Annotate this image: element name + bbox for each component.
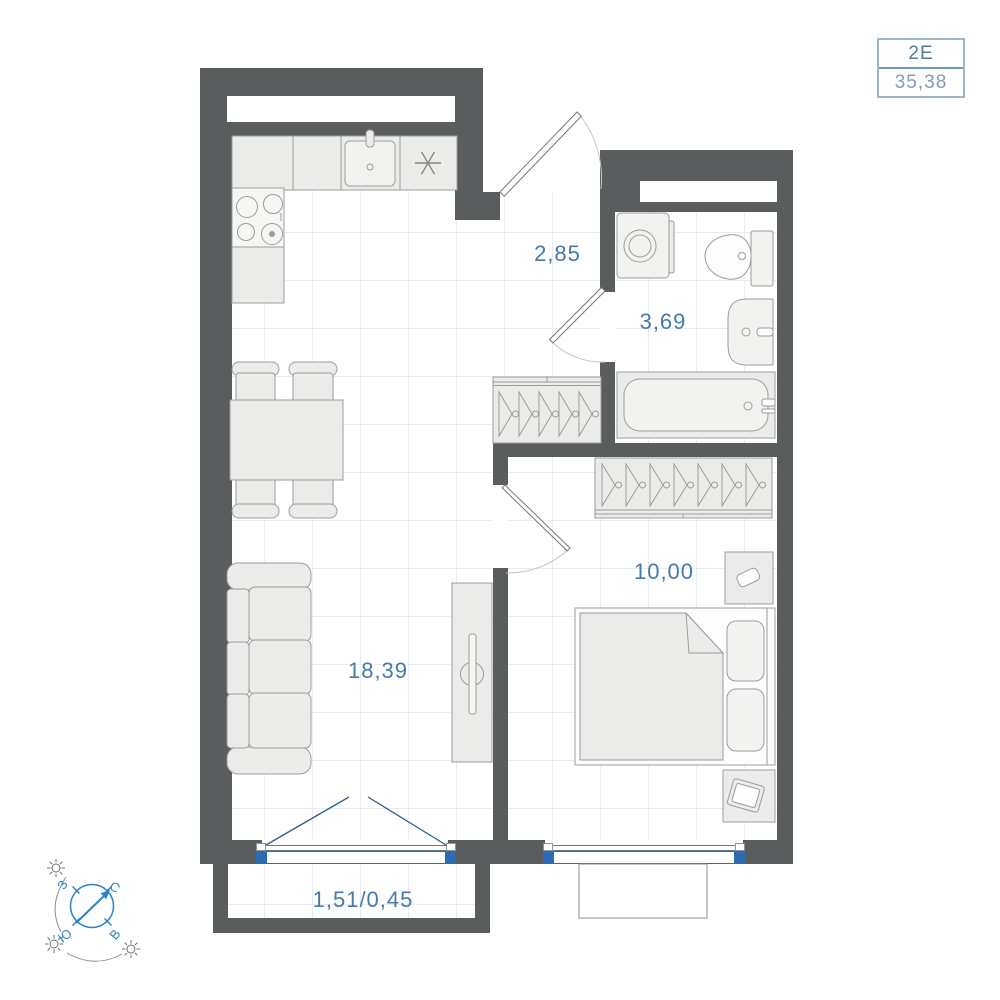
nightstand	[725, 552, 773, 604]
compass-west: З	[54, 877, 71, 892]
bathroom-door	[550, 288, 606, 363]
washbasin-icon	[728, 299, 773, 365]
compass-east: В	[106, 926, 123, 942]
dining-table	[230, 400, 343, 480]
balcony-area-label: 1,51/0,45	[283, 887, 443, 913]
compass-icon: С З Ю В	[45, 859, 140, 961]
sun-icon	[47, 859, 65, 877]
balcony-window-opening-lines	[266, 797, 446, 845]
hallway-area-label: 2,85	[515, 241, 600, 267]
exterior-ledge	[579, 864, 707, 918]
furniture-layer: С З Ю В	[0, 0, 1000, 1000]
living-kitchen-area-label: 18,39	[333, 658, 423, 684]
plan-badge: 2Е 35,38	[877, 38, 965, 98]
bed	[575, 608, 775, 765]
hall-wardrobe	[493, 377, 601, 443]
stove-icon	[232, 188, 284, 247]
bedroom-area-label: 10,00	[619, 559, 709, 585]
sun-icon	[122, 940, 140, 958]
bedroom-wardrobe	[595, 458, 772, 518]
toilet-icon	[705, 231, 773, 286]
entrance-door	[500, 112, 602, 196]
kitchen-counter-lower	[232, 247, 284, 303]
plan-area-label: 35,38	[879, 69, 963, 96]
bedroom-door	[502, 485, 570, 573]
nightstand-2	[723, 770, 775, 822]
washing-machine-icon	[617, 213, 674, 278]
floor-plan: С З Ю В 2,85 3,69 10,00 18,39 1,51/0,45 …	[0, 0, 1000, 1000]
bathtub-icon	[617, 372, 775, 438]
sofa	[227, 563, 311, 774]
bathroom-area-label: 3,69	[623, 309, 703, 335]
plan-type-label: 2Е	[879, 40, 963, 69]
